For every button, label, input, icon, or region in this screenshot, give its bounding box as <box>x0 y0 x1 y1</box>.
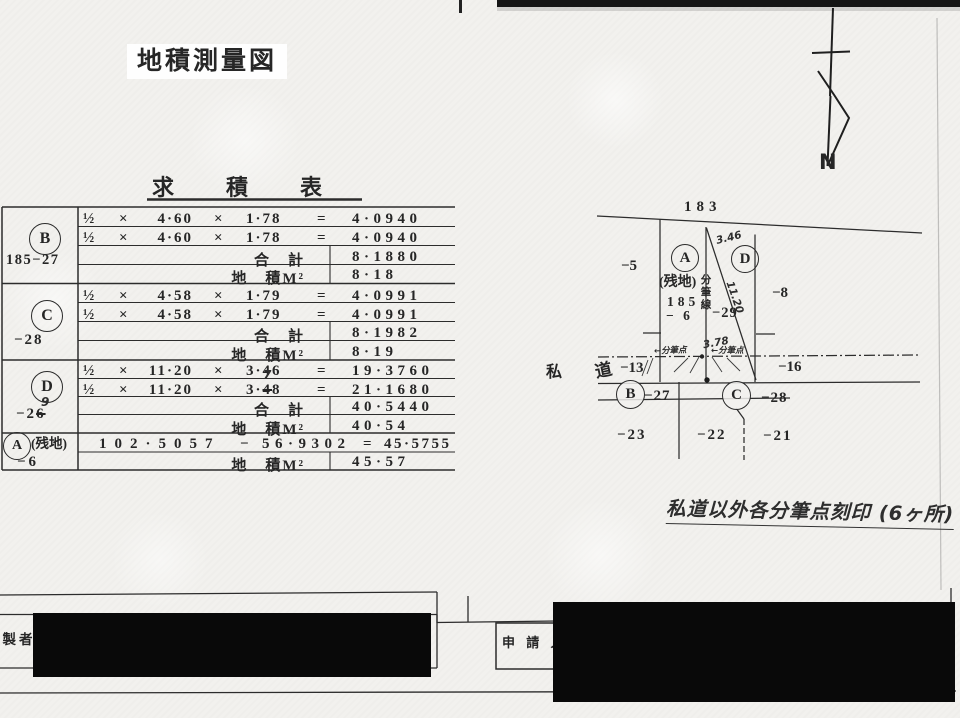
formula-row: ½ × 11·20 × 3·46 = 19·3760 <box>0 363 470 381</box>
half-symbol: ½ <box>83 211 94 228</box>
parcel-letter: D <box>740 252 751 267</box>
equals-symbol: = <box>317 307 326 324</box>
survey-document-scan: 地積測量図 求 積 表 B 185−27 ½ × 4·60 × 1·78 = 4… <box>0 0 960 718</box>
equals-symbol: = <box>317 288 326 305</box>
factor-a: 4·58 <box>143 307 193 324</box>
maker-label: 作製者 <box>0 633 36 647</box>
factor-a: 4·60 <box>143 211 193 228</box>
equals-symbol: = <box>317 363 326 380</box>
private-road-label-do: 道 <box>593 360 613 380</box>
formula-row: ½ × 4·60 × 1·78 = 4·0940 <box>0 211 470 229</box>
area-table-title: 求 積 表 <box>152 177 337 199</box>
row-result: 4·0991 <box>352 288 422 305</box>
diagram-parcel-a-badge: A <box>671 244 699 272</box>
redaction-box-maker <box>33 613 431 677</box>
minuend: 102·5057 <box>99 436 221 453</box>
times-symbol: × <box>214 307 223 324</box>
total-row: 合 計 40·5440 <box>0 399 470 417</box>
minus-symbol: − <box>240 436 249 453</box>
point-letter: B <box>625 387 635 402</box>
area-label: 地 積M² <box>180 454 305 475</box>
times-symbol: × <box>119 363 128 380</box>
area-value: 8·18 <box>352 267 398 284</box>
row-result: 4·0940 <box>352 211 422 228</box>
factor-b: 1·79 <box>246 288 282 305</box>
row-result: 4·0940 <box>352 230 422 247</box>
factor-b: 3·48 <box>246 382 282 399</box>
factor-a: 4·58 <box>143 288 193 305</box>
total-label: 合 計 <box>180 325 305 346</box>
area-row: 地 積M² 8·19 <box>0 344 470 362</box>
times-symbol: × <box>119 307 128 324</box>
total-row: 合 計 8·1982 <box>0 325 470 343</box>
factor-a: 4·60 <box>143 230 193 247</box>
half-symbol: ½ <box>83 307 94 324</box>
area-label: 地 積M² <box>180 267 305 288</box>
parcel-letter: A <box>680 251 691 266</box>
area-value: 45·57 <box>352 454 410 471</box>
row-result: 45·5755 <box>384 436 452 453</box>
formula-row: ½ × 4·58 × 1·79 = 4·0991 <box>0 307 470 325</box>
north-label: N <box>819 152 837 173</box>
diagram-lot-minus13: −13 <box>620 361 644 376</box>
area-row: 地 積M² 40·54 <box>0 418 470 436</box>
times-symbol: × <box>119 230 128 247</box>
factor-b-pre: 3· <box>246 382 263 398</box>
factor-b: 1·79 <box>246 307 282 324</box>
diagram-lot-minus5: −5 <box>621 259 637 274</box>
equals-symbol: = <box>317 230 326 247</box>
diagram-lot-minus27: −27 <box>644 389 671 404</box>
half-symbol: ½ <box>83 382 94 399</box>
area-label: 地 積M² <box>180 344 305 365</box>
area-value: 40·54 <box>352 418 410 435</box>
diagram-zanchi-note: (残地) <box>659 276 696 290</box>
times-symbol: × <box>119 382 128 399</box>
total-row: 合 計 8·1880 <box>0 249 470 267</box>
factor-b: 1·78 <box>246 230 282 247</box>
area-value: 8·19 <box>352 344 398 361</box>
times-symbol: × <box>214 211 223 228</box>
times-symbol: × <box>214 288 223 305</box>
factor-b: 1·78 <box>246 211 282 228</box>
diagram-lot-minus6: − 6 <box>666 309 693 323</box>
factor-a: 11·20 <box>143 382 193 399</box>
hw-strip-note-left: ←分筆点 <box>654 346 687 356</box>
times-symbol: × <box>214 363 223 380</box>
diagram-lot-183: 183 <box>684 200 722 215</box>
subtraction-row: 102·5057 − 56·9302 = 45·5755 <box>0 436 470 454</box>
row-result: 21·1680 <box>352 382 434 399</box>
half-symbol: ½ <box>83 288 94 305</box>
point-letter: C <box>731 388 742 403</box>
diagram-lot-minus28: −28 <box>761 391 788 406</box>
area-row: 地 積M² 8·18 <box>0 267 470 285</box>
diagram-lot-minus8: −8 <box>772 286 788 301</box>
factor-b-post: 8 <box>272 382 282 398</box>
total-value: 8·1982 <box>352 325 422 342</box>
page-title: 地積測量図 <box>127 44 287 79</box>
times-symbol: × <box>214 382 223 399</box>
equals-symbol: = <box>317 211 326 228</box>
area-row: 地 積M² 45·57 <box>0 454 470 472</box>
diagram-parcel-d-badge: D <box>731 245 759 273</box>
row-result: 4·0991 <box>352 307 422 324</box>
diagram-point-c-badge: C <box>722 381 751 410</box>
total-value: 40·5440 <box>352 399 434 416</box>
formula-row: ½ × 4·60 × 1·78 = 4·0940 <box>0 230 470 248</box>
half-symbol: ½ <box>83 363 94 380</box>
diagram-lot-minus22: −22 <box>697 428 727 443</box>
diagram-point-b-badge: B <box>616 380 645 409</box>
times-symbol: × <box>119 211 128 228</box>
subtrahend: 56·9302 <box>262 436 351 453</box>
diagram-lot-minus21: −21 <box>763 429 793 444</box>
half-symbol: ½ <box>83 230 94 247</box>
subdivision-line-label: 分筆線 <box>699 274 710 312</box>
north-arrow-icon <box>812 8 850 166</box>
diagram-lot-minus23: −23 <box>617 428 647 443</box>
total-value: 8·1880 <box>352 249 422 266</box>
diagram-lot-minus16: −16 <box>778 360 802 375</box>
equals-symbol: = <box>317 382 326 399</box>
formula-row: ½ × 4·58 × 1·79 = 4·0991 <box>0 288 470 306</box>
diagram-lot-185: 185 <box>667 295 699 309</box>
row-result: 19·3760 <box>352 363 434 380</box>
times-symbol: × <box>214 230 223 247</box>
factor-a: 11·20 <box>143 363 193 380</box>
equals-symbol: = <box>363 436 372 453</box>
times-symbol: × <box>119 288 128 305</box>
factor-b-struck: 4 <box>263 382 273 398</box>
formula-row-corrected: ½ × 11·20 × 3·48 = 21·1680 <box>0 382 470 400</box>
redaction-box-applicant <box>553 602 955 702</box>
private-road-label-shi: 私 <box>546 365 562 381</box>
hw-strip-note-right: ←分筆点 <box>711 347 744 356</box>
factor-b-correction: 7 <box>263 369 271 381</box>
